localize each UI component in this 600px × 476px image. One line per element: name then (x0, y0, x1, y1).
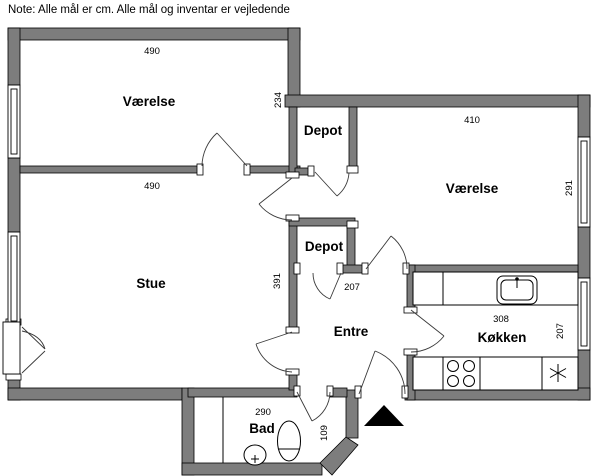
dim-vaerelse-e-width: 410 (464, 115, 480, 126)
door-jambs (6, 164, 417, 398)
note-text: Note: Alle mål er cm. Alle mål og invent… (8, 4, 290, 16)
dim-vaerelse-e-height: 291 (564, 180, 575, 196)
room-label-depot-s: Depot (305, 239, 344, 254)
floor-plan-drawing: Note: Alle mål er cm. Alle mål og invent… (0, 0, 600, 476)
dim-bad-height: 109 (319, 425, 330, 441)
kitchen-counter-top (413, 272, 578, 305)
door-arc (366, 236, 407, 269)
entrance-arrow-icon (364, 405, 404, 426)
room-label-vaerelse-e: Værelse (446, 181, 499, 196)
door-arc (256, 332, 292, 372)
room-label-depot-n: Depot (304, 123, 343, 138)
dim-bad-width: 290 (255, 407, 271, 418)
window (578, 278, 590, 350)
room-label-vaerelse-nw: Værelse (123, 94, 176, 109)
door-arc (315, 172, 349, 196)
floor-plan: Note: Alle mål er cm. Alle mål og invent… (0, 0, 600, 476)
kitchen-sink-icon (497, 276, 537, 304)
room-label-entre: Entre (334, 324, 369, 339)
balcony-door (3, 322, 45, 374)
dim-koekken-height: 207 (555, 323, 566, 339)
dim-entre-width: 207 (344, 282, 360, 293)
door-arc (313, 273, 341, 299)
window (8, 232, 20, 325)
walls (8, 28, 590, 475)
door-arc (297, 392, 330, 421)
dim-koekken-width: 308 (493, 314, 509, 325)
window (8, 85, 20, 158)
door-arc (411, 310, 444, 352)
door-arc (259, 178, 292, 220)
door-arc (202, 133, 247, 166)
room-label-bad: Bad (249, 421, 275, 436)
room-label-koekken: Køkken (478, 330, 527, 345)
window (578, 137, 590, 227)
kitchen-counter-bottom (413, 357, 578, 390)
toilet-icon (278, 421, 301, 461)
dim-vaerelse-nw-height: 234 (273, 92, 284, 108)
dim-vaerelse-nw-width: 490 (144, 46, 160, 57)
door-arc (359, 351, 405, 394)
dim-stue-height: 391 (272, 273, 283, 289)
washbasin-icon (244, 445, 266, 465)
room-label-stue: Stue (136, 276, 166, 291)
dim-stue-width: 490 (144, 181, 160, 192)
